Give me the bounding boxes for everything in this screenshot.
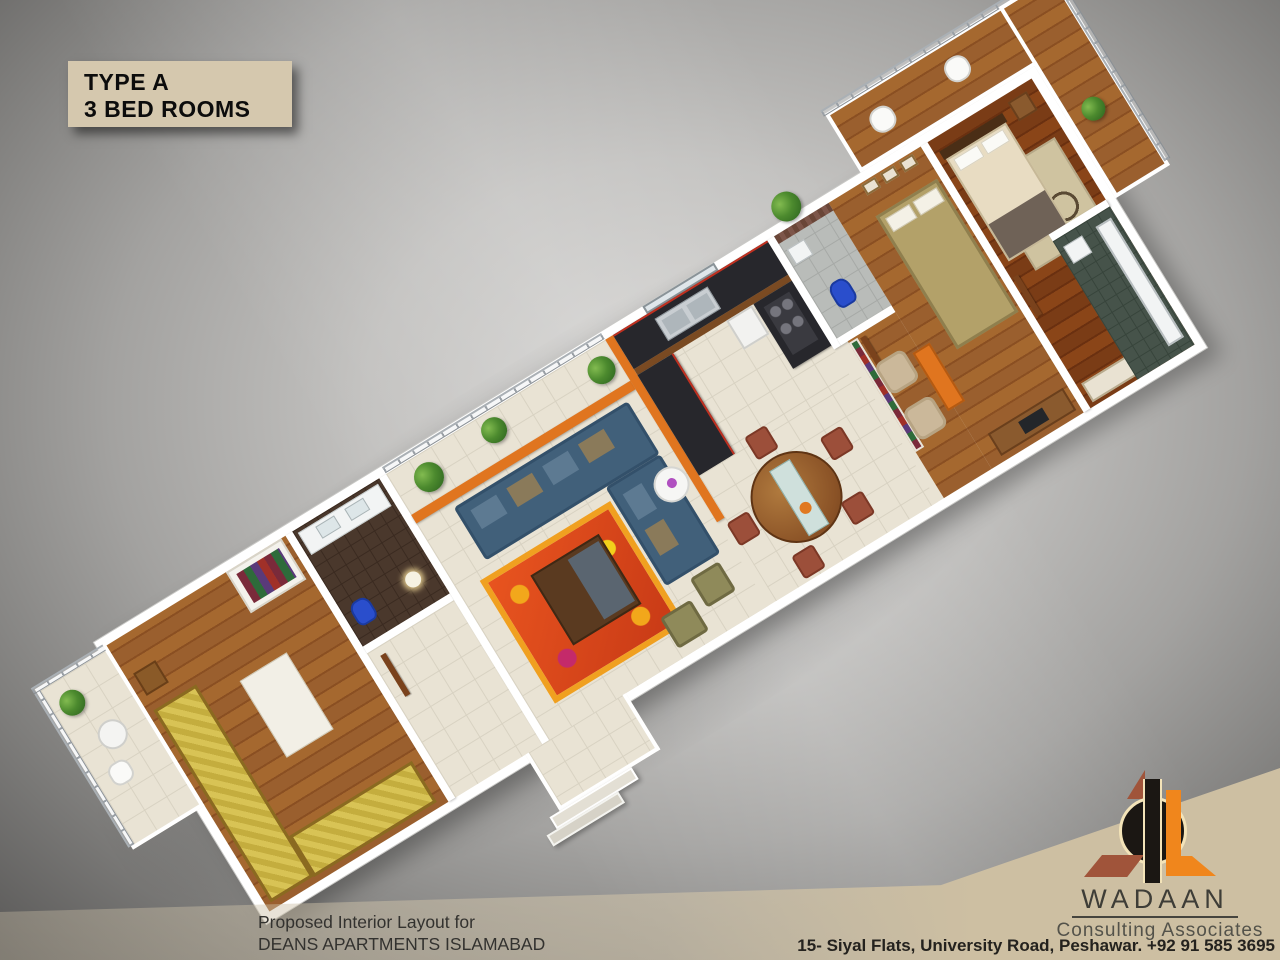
bed-pillow (912, 187, 944, 215)
balcony-3-chair (104, 756, 137, 789)
caption-line2: DEANS APARTMENTS ISLAMABAD (258, 933, 545, 955)
potted-plant (54, 685, 90, 721)
bathroom-3-tub (1096, 218, 1184, 347)
sink-basin (661, 308, 690, 335)
bed-pillow (885, 204, 917, 232)
brand-address: 15- Siyal Flats, University Road, Peshaw… (797, 936, 1275, 956)
sink-basin (686, 293, 715, 320)
bathroom-1-basin (787, 239, 813, 265)
potted-plant (1077, 92, 1110, 125)
unit-type-line2: 3 BED ROOMS (84, 96, 292, 123)
floor-plan-render: TYPE A 3 BED ROOMS WADAAN (0, 0, 1280, 960)
balcony-chair (940, 51, 976, 87)
sofa-cushion (542, 451, 579, 485)
sofa-cushion (623, 483, 657, 520)
unit-type-line1: TYPE A (84, 69, 292, 96)
bathroom-2-toilet (347, 594, 379, 628)
sofa-cushion (578, 429, 615, 463)
sofa-cushion (506, 473, 543, 507)
sofa-cushion (645, 519, 679, 556)
wadaan-logo-bar-icon (1143, 779, 1162, 883)
table-runner (769, 459, 829, 536)
unit-type-label: TYPE A 3 BED ROOMS (68, 61, 292, 127)
caption: Proposed Interior Layout for DEANS APART… (258, 911, 545, 955)
bathroom-2-lamp (402, 568, 424, 590)
balcony-3-table (92, 714, 133, 755)
brand-name: WADAAN (1072, 884, 1238, 918)
caption-line1: Proposed Interior Layout for (258, 911, 545, 933)
bathroom-1-toilet (826, 275, 859, 310)
bathroom-3-basin (1063, 235, 1092, 264)
sofa-cushion (470, 495, 507, 529)
balcony-chair (865, 101, 901, 137)
flower-vase (665, 476, 679, 490)
